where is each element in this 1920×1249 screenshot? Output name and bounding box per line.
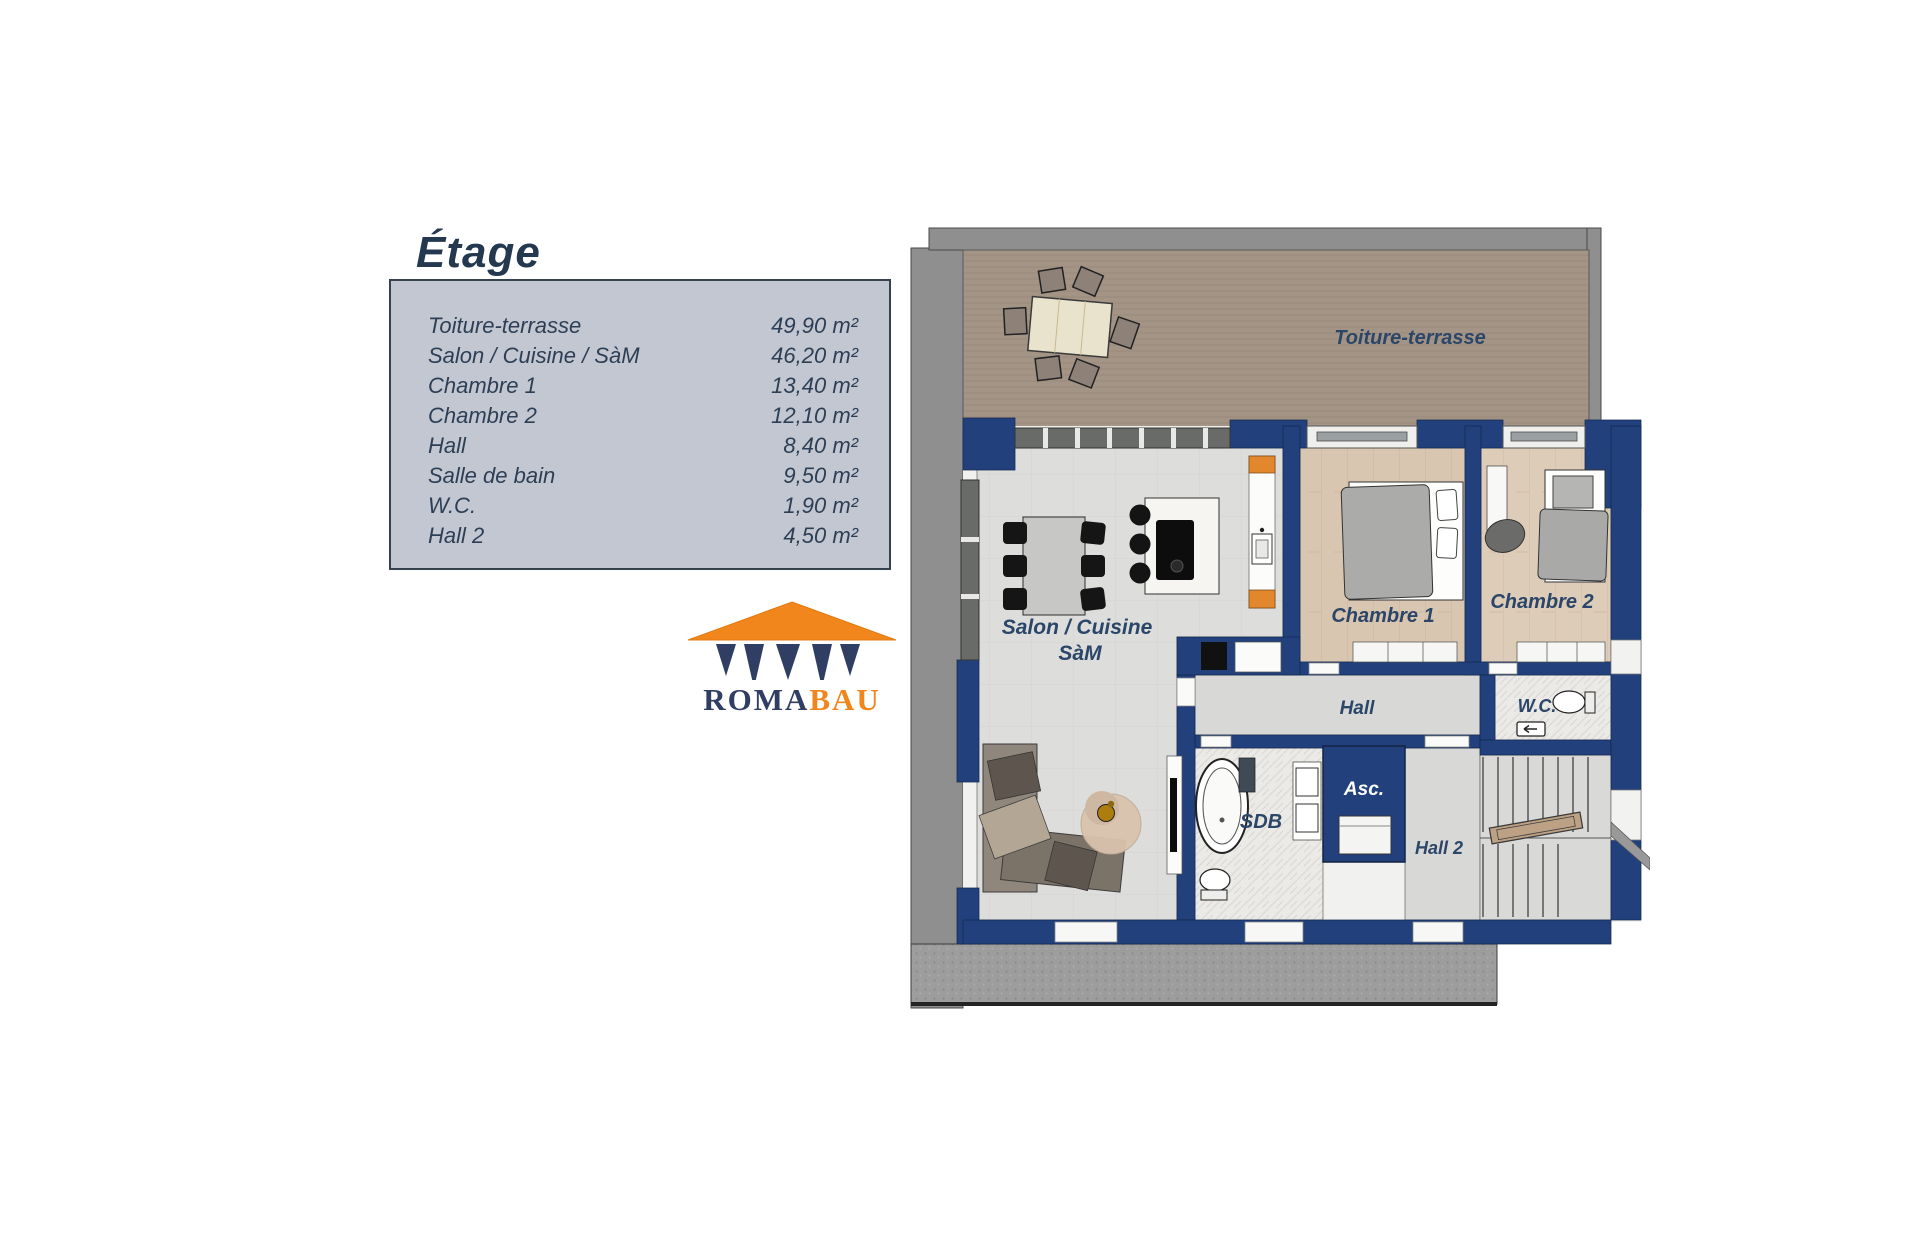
legend-room-name: Chambre 1 [428,371,537,401]
label-hall2: Hall 2 [1415,838,1463,858]
legend-room-area: 13,40 m² [771,371,858,401]
legend-room-name: Chambre 2 [428,401,537,431]
legend-room-name: Hall [428,431,466,461]
kitchen-cabinet-orange-bottom [1249,590,1275,608]
elevator [1323,746,1405,862]
legend-row: Chambre 2 12,10 m² [428,401,858,431]
salon-hall-door [1177,678,1195,706]
legend-room-area: 46,20 m² [771,341,858,371]
legend-panel: Toiture-terrasse 49,90 m² Salon / Cuisin… [389,279,891,570]
chambre2-window-glass [1511,432,1577,441]
sdb-door [1201,736,1231,747]
wc-toilet [1553,691,1585,713]
lower-terrace-edge [911,1002,1497,1006]
dining-table [1023,517,1085,615]
logo-text-primary: ROMA [703,682,809,717]
logo-pillars-icon [716,644,860,680]
chambre2-door [1489,663,1517,674]
sdb-sink [1296,768,1318,796]
chambre1-dresser [1353,642,1457,662]
wall-chambre1-chambre2 [1465,426,1481,675]
legend-row: Hall 8,40 m² [428,431,858,461]
label-hall: Hall [1340,698,1376,719]
sdb-sink [1296,804,1318,832]
legend-row: Salon / Cuisine / SàM 46,20 m² [428,341,858,371]
chambre1-window-glass [1317,432,1407,441]
bed1-duvet [1341,484,1433,599]
hall-floor [1195,675,1480,735]
kitchen-cabinet-orange-top [1249,456,1275,473]
romabau-logo-icon [686,600,898,680]
sdb-vanity [1293,762,1321,840]
label-toiture-terrasse: Toiture-terrasse [1334,327,1486,349]
legend-room-name: Toiture-terrasse [428,311,581,341]
lower-terrace-deck [911,944,1497,1004]
legend-room-area: 1,90 m² [783,491,858,521]
kitchen-faucet [1260,528,1264,532]
hall2-opening [1425,736,1469,747]
wc-toilet-tank [1585,692,1595,713]
legend-row: Hall 2 4,50 m² [428,521,858,551]
legend-row: Salle de bain 9,50 m² [428,461,858,491]
terrace-top-rim [929,228,1601,250]
legend-row: W.C. 1,90 m² [428,491,858,521]
logo-wordmark: ROMABAU [686,682,898,718]
kitchen-counter-piece [1235,642,1281,672]
legend-room-name: Salon / Cuisine / SàM [428,341,640,371]
cooktop-burner [1171,560,1183,572]
bed2-duvet [1538,509,1608,581]
romabau-logo: ROMABAU [686,600,898,718]
label-chambre2: Chambre 2 [1490,591,1593,613]
wall-corner-top-left [963,418,1015,470]
legend-room-area: 12,10 m² [771,401,858,431]
legend-room-area: 9,50 m² [783,461,858,491]
exterior-left-band [911,248,963,1008]
logo-text-secondary: BAU [809,682,880,717]
legend-room-name: W.C. [428,491,476,521]
sdb-shelf [1239,758,1255,792]
legend-room-area: 8,40 m² [783,431,858,461]
hall2-floor [1405,748,1480,920]
tv-screen [1170,778,1177,852]
legend-room-name: Salle de bain [428,461,555,491]
label-salon-line1: Salon / Cuisine [1002,616,1153,639]
chambre1-door [1309,663,1339,674]
legend-room-name: Hall 2 [428,521,484,551]
salon-terrace-door [1055,922,1117,942]
salon-left-mullion [961,537,979,542]
label-salon-line2: SàM [1058,642,1102,665]
floor-plan-drawing: Toiture-terrasse Salon / Cuisine SàM Cha… [905,222,1650,1022]
page: Étage Toiture-terrasse 49,90 m² Salon / … [0,0,1920,1249]
chambre2-dresser [1517,642,1605,662]
bed1-pillow [1436,527,1458,558]
sdb-toilet [1200,869,1230,891]
tv-sideboard [1167,756,1182,874]
floor-plan: Toiture-terrasse Salon / Cuisine SàM Cha… [905,222,1650,1022]
page-title: Étage [416,228,541,278]
label-chambre1: Chambre 1 [1331,605,1434,627]
wc-door-sign [1517,722,1545,736]
wall-hall-wc [1480,675,1495,740]
elevator-car [1339,816,1391,854]
legend-room-area: 4,50 m² [783,521,858,551]
kitchen-appliance [1201,642,1227,670]
hall2-exterior-door [1413,922,1463,942]
kitchen-wall-counter [1249,456,1275,608]
island-stools [1130,505,1151,584]
lower-terrace [911,944,1497,1006]
salon-left-window [961,480,979,660]
salon-left-mullion [961,594,979,599]
bathtub-drain [1220,818,1225,823]
label-asc: Asc. [1343,779,1384,800]
toiture-terrasse-room [963,250,1589,428]
bed2-pillow [1553,476,1593,508]
legend-row: Toiture-terrasse 49,90 m² [428,311,858,341]
label-wc: W.C. [1518,696,1557,716]
label-sdb: SDB [1240,811,1282,833]
right-wall-window [1611,640,1641,674]
wall-wc-stairs [1480,740,1611,755]
wall-hall-top [1300,662,1611,675]
bed1-pillow [1436,489,1458,520]
legend-row: Chambre 1 13,40 m² [428,371,858,401]
sdb-toilet-tank [1201,890,1227,900]
legend-room-area: 49,90 m² [771,311,858,341]
wall-block-top-right [1417,420,1503,448]
sdb-exterior-window [1245,922,1303,942]
wall-left-segment [957,660,979,782]
logo-roof-icon [688,602,896,640]
